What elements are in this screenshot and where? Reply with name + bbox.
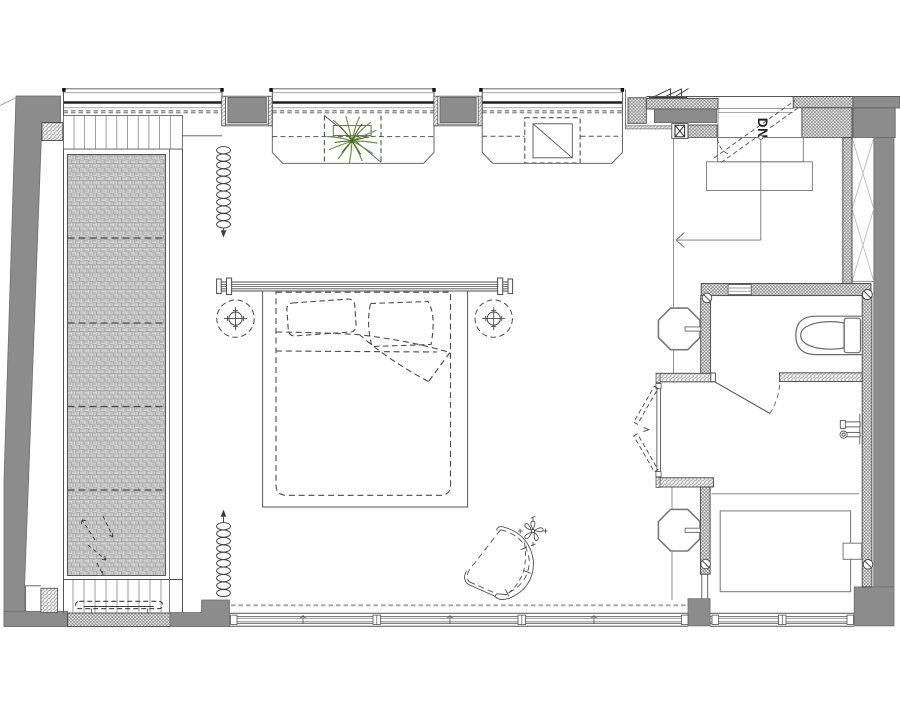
svg-text:DN: DN (755, 118, 770, 139)
